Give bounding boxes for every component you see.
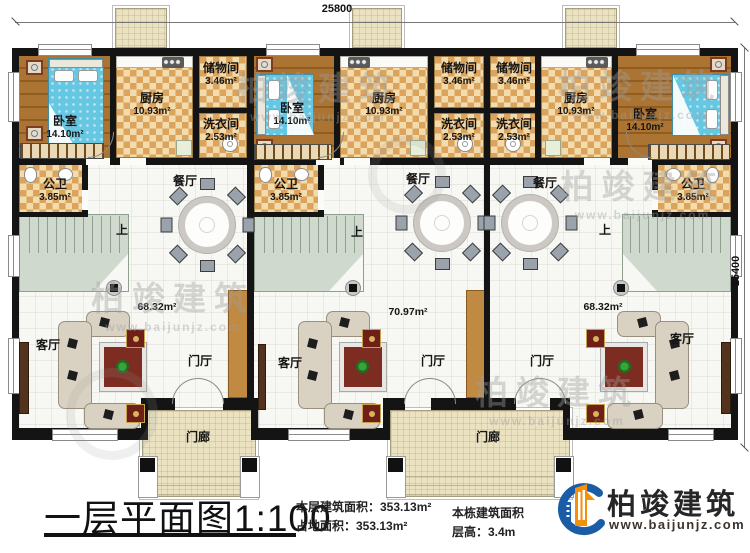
logo-url: www.baijunjz.com (609, 517, 745, 532)
end-table (126, 329, 145, 348)
table-ring (522, 215, 538, 231)
lamp (369, 336, 375, 342)
bedroom-area: 14.10m² (257, 116, 327, 128)
plant (617, 359, 632, 374)
bed-right (672, 74, 730, 136)
stair-treads (21, 216, 128, 253)
room-label-kitchen-right: 厨房10.93m² (541, 92, 611, 117)
window (8, 235, 20, 277)
dining-table-left (175, 193, 239, 257)
end-table (586, 404, 605, 423)
wood-partition-right (466, 290, 486, 398)
logo-tower-orange (575, 484, 587, 526)
lamp (133, 411, 139, 417)
dining-chair (565, 216, 577, 231)
dining-chair (200, 178, 215, 190)
wall (434, 108, 484, 113)
nightstand (256, 57, 273, 72)
kitchen-name: 厨房 (117, 92, 187, 106)
dimension-line-top (15, 22, 735, 23)
lamp (31, 64, 38, 71)
room-label-bathroom-right: 公卫3.85m² (658, 178, 728, 203)
wall (252, 212, 324, 217)
room-label-laundry-right: 洗衣间2.53m² (479, 118, 549, 143)
table-ring (199, 217, 215, 233)
bedroom-name: 卧室 (30, 115, 100, 129)
title-underline (44, 533, 296, 537)
room-label-bathroom-left: 公卫3.85m² (20, 178, 90, 203)
headboard (49, 59, 103, 68)
dimension-line-right (744, 48, 745, 448)
room-label-dining-right: 餐厅 (533, 174, 557, 191)
kitchen-area: 10.93m² (117, 106, 187, 118)
staircase-middle (254, 214, 364, 292)
dining-table-middle (410, 191, 474, 255)
window (730, 72, 742, 122)
column-core (110, 284, 118, 292)
column-icon (106, 280, 122, 296)
stairs-up-middle: 上 (351, 223, 363, 240)
wall (199, 108, 247, 113)
bathroom-name: 公卫 (251, 178, 321, 192)
room-label-living-left: 客厅 (36, 336, 60, 353)
stove-icon (348, 57, 370, 68)
plant (115, 359, 130, 374)
tv-cabinet (19, 342, 29, 414)
dining-chair (160, 218, 172, 233)
stair-treads (256, 216, 363, 253)
dimension-width: 25800 (305, 3, 369, 15)
room-label-porch-left: 门廊 (186, 428, 210, 445)
room-label-storage-right: 储物间3.46m² (479, 62, 549, 87)
pillow (706, 80, 718, 100)
room-label-bathroom-middle: 公卫3.85m² (251, 178, 321, 203)
room-label-foyer-right: 门厅 (530, 352, 554, 369)
back-porch-right (565, 8, 617, 48)
wall (12, 212, 88, 217)
dimension-depth: 15400 (730, 243, 742, 299)
wall (251, 398, 258, 440)
bathroom-area: 3.85m² (658, 192, 728, 204)
porch-column-cap (388, 458, 403, 472)
window (38, 44, 92, 56)
kitchen-name: 厨房 (541, 92, 611, 106)
room-label-kitchen-left: 厨房10.93m² (117, 92, 187, 117)
window (636, 44, 700, 56)
stove-icon (586, 57, 608, 68)
bedroom-area: 14.10m² (30, 129, 100, 141)
kitchen-area: 10.93m² (541, 106, 611, 118)
bathroom-name: 公卫 (658, 178, 728, 192)
dining-chair (435, 258, 450, 270)
dining-chair (395, 216, 407, 231)
wall (390, 398, 405, 410)
pillow (54, 70, 74, 82)
end-table (362, 404, 381, 423)
room-label-foyer-middle: 门厅 (421, 352, 445, 369)
room-label-bedroom-middle: 卧室14.10m² (257, 102, 327, 127)
room-label-laundry-left: 洗衣间2.53m² (186, 118, 256, 143)
column-core (349, 284, 357, 292)
sofa (58, 321, 92, 409)
laundry-name: 洗衣间 (479, 118, 549, 132)
door-gap (344, 158, 370, 165)
wall-north (12, 48, 738, 56)
window (730, 338, 742, 394)
stove-icon (162, 57, 184, 68)
door-gap (86, 158, 110, 165)
dining-table-right (498, 191, 562, 255)
lamp (261, 61, 268, 68)
dining-chair (435, 176, 450, 188)
bedroom-name: 卧室 (610, 108, 680, 122)
window (8, 72, 20, 122)
unit-area-left: 68.32m² (122, 301, 192, 313)
room-label-dining-left: 餐厅 (173, 172, 197, 189)
stairs-up-left: 上 (116, 221, 128, 238)
dining-chair (523, 258, 538, 270)
laundry-area: 2.53m² (186, 132, 256, 144)
sofa-set-right (597, 311, 689, 431)
wardrobe (648, 144, 730, 160)
dining-chair (242, 218, 254, 233)
kitchen-name: 厨房 (349, 92, 419, 106)
room-label-storage-left: 储物间3.46m² (186, 62, 256, 87)
plant (355, 359, 370, 374)
window (266, 44, 320, 56)
wall (563, 398, 570, 440)
bedroom-name: 卧室 (257, 102, 327, 116)
room-label-porch-right: 门廊 (476, 428, 500, 445)
bathroom-area: 3.85m² (20, 192, 90, 204)
storage-name: 储物间 (186, 62, 256, 76)
pillow (268, 80, 280, 100)
column-icon (345, 280, 361, 296)
stat-footprint: 占地面积：353.13m² (296, 517, 407, 534)
wall (490, 108, 538, 113)
dining-chair (200, 260, 215, 272)
room-label-living-right: 客厅 (670, 330, 694, 347)
stat-building-area: 本栋建筑面积 (452, 504, 524, 521)
end-table (586, 329, 605, 348)
lamp (369, 411, 375, 417)
porch-steps-right (394, 468, 566, 495)
storage-area: 3.46m² (186, 76, 256, 88)
laundry-area: 2.53m² (479, 132, 549, 144)
headboard (720, 75, 729, 135)
storage-area: 3.46m² (479, 76, 549, 88)
nightstand (26, 60, 43, 75)
tv-cabinet (258, 344, 266, 410)
nightstand (710, 57, 727, 72)
tv-cabinet (721, 342, 731, 414)
wall (148, 398, 175, 410)
table-ring (434, 215, 450, 231)
pillow (706, 109, 718, 129)
column-icon (613, 280, 629, 296)
laundry-name: 洗衣间 (186, 118, 256, 132)
room-label-bedroom-left: 卧室14.10m² (30, 115, 100, 140)
bathroom-name: 公卫 (20, 178, 90, 192)
end-table (126, 404, 145, 423)
bedroom-area: 14.10m² (610, 122, 680, 134)
floor-plan: 卧室14.10m² 卧室14.10m² 卧室14.10m² 厨房10.93m² … (0, 0, 750, 553)
room-label-dining-middle: 餐厅 (406, 170, 430, 187)
bathroom-area: 3.85m² (251, 192, 321, 204)
pillow (78, 70, 98, 82)
end-table (362, 329, 381, 348)
porch-column-cap (140, 458, 155, 472)
room-label-foyer-left: 门厅 (188, 352, 212, 369)
lamp (593, 336, 599, 342)
porch-column-cap (556, 458, 571, 472)
sofa (298, 321, 332, 409)
stairs-up-right: 上 (599, 221, 611, 238)
door-gap (120, 158, 146, 165)
room-label-living-middle: 客厅 (278, 354, 302, 371)
storage-name: 储物间 (479, 62, 549, 76)
wall (612, 48, 618, 165)
porch-column-cap (242, 458, 257, 472)
staircase-right (622, 214, 731, 292)
wood-partition-left (228, 290, 248, 398)
unit-area-middle: 70.97m² (373, 306, 443, 318)
stair-treads (623, 216, 729, 253)
kitchen-area: 10.93m² (349, 106, 419, 118)
door-gap (584, 158, 610, 165)
lamp (715, 61, 722, 68)
dining-chair (483, 216, 495, 231)
room-label-kitchen-middle: 厨房10.93m² (349, 92, 419, 117)
room-label-bedroom-right: 卧室14.10m² (610, 108, 680, 133)
logo-icon (551, 478, 609, 544)
wall (652, 212, 738, 217)
column-core (617, 284, 625, 292)
unit-area-right: 68.32m² (568, 301, 638, 313)
lamp (133, 336, 139, 342)
stat-floor-height: 层高：3.4m (452, 523, 515, 540)
stat-floor-area: 本层建筑面积：353.13m² (296, 498, 431, 515)
lamp (593, 411, 599, 417)
back-porch-left (115, 8, 167, 48)
